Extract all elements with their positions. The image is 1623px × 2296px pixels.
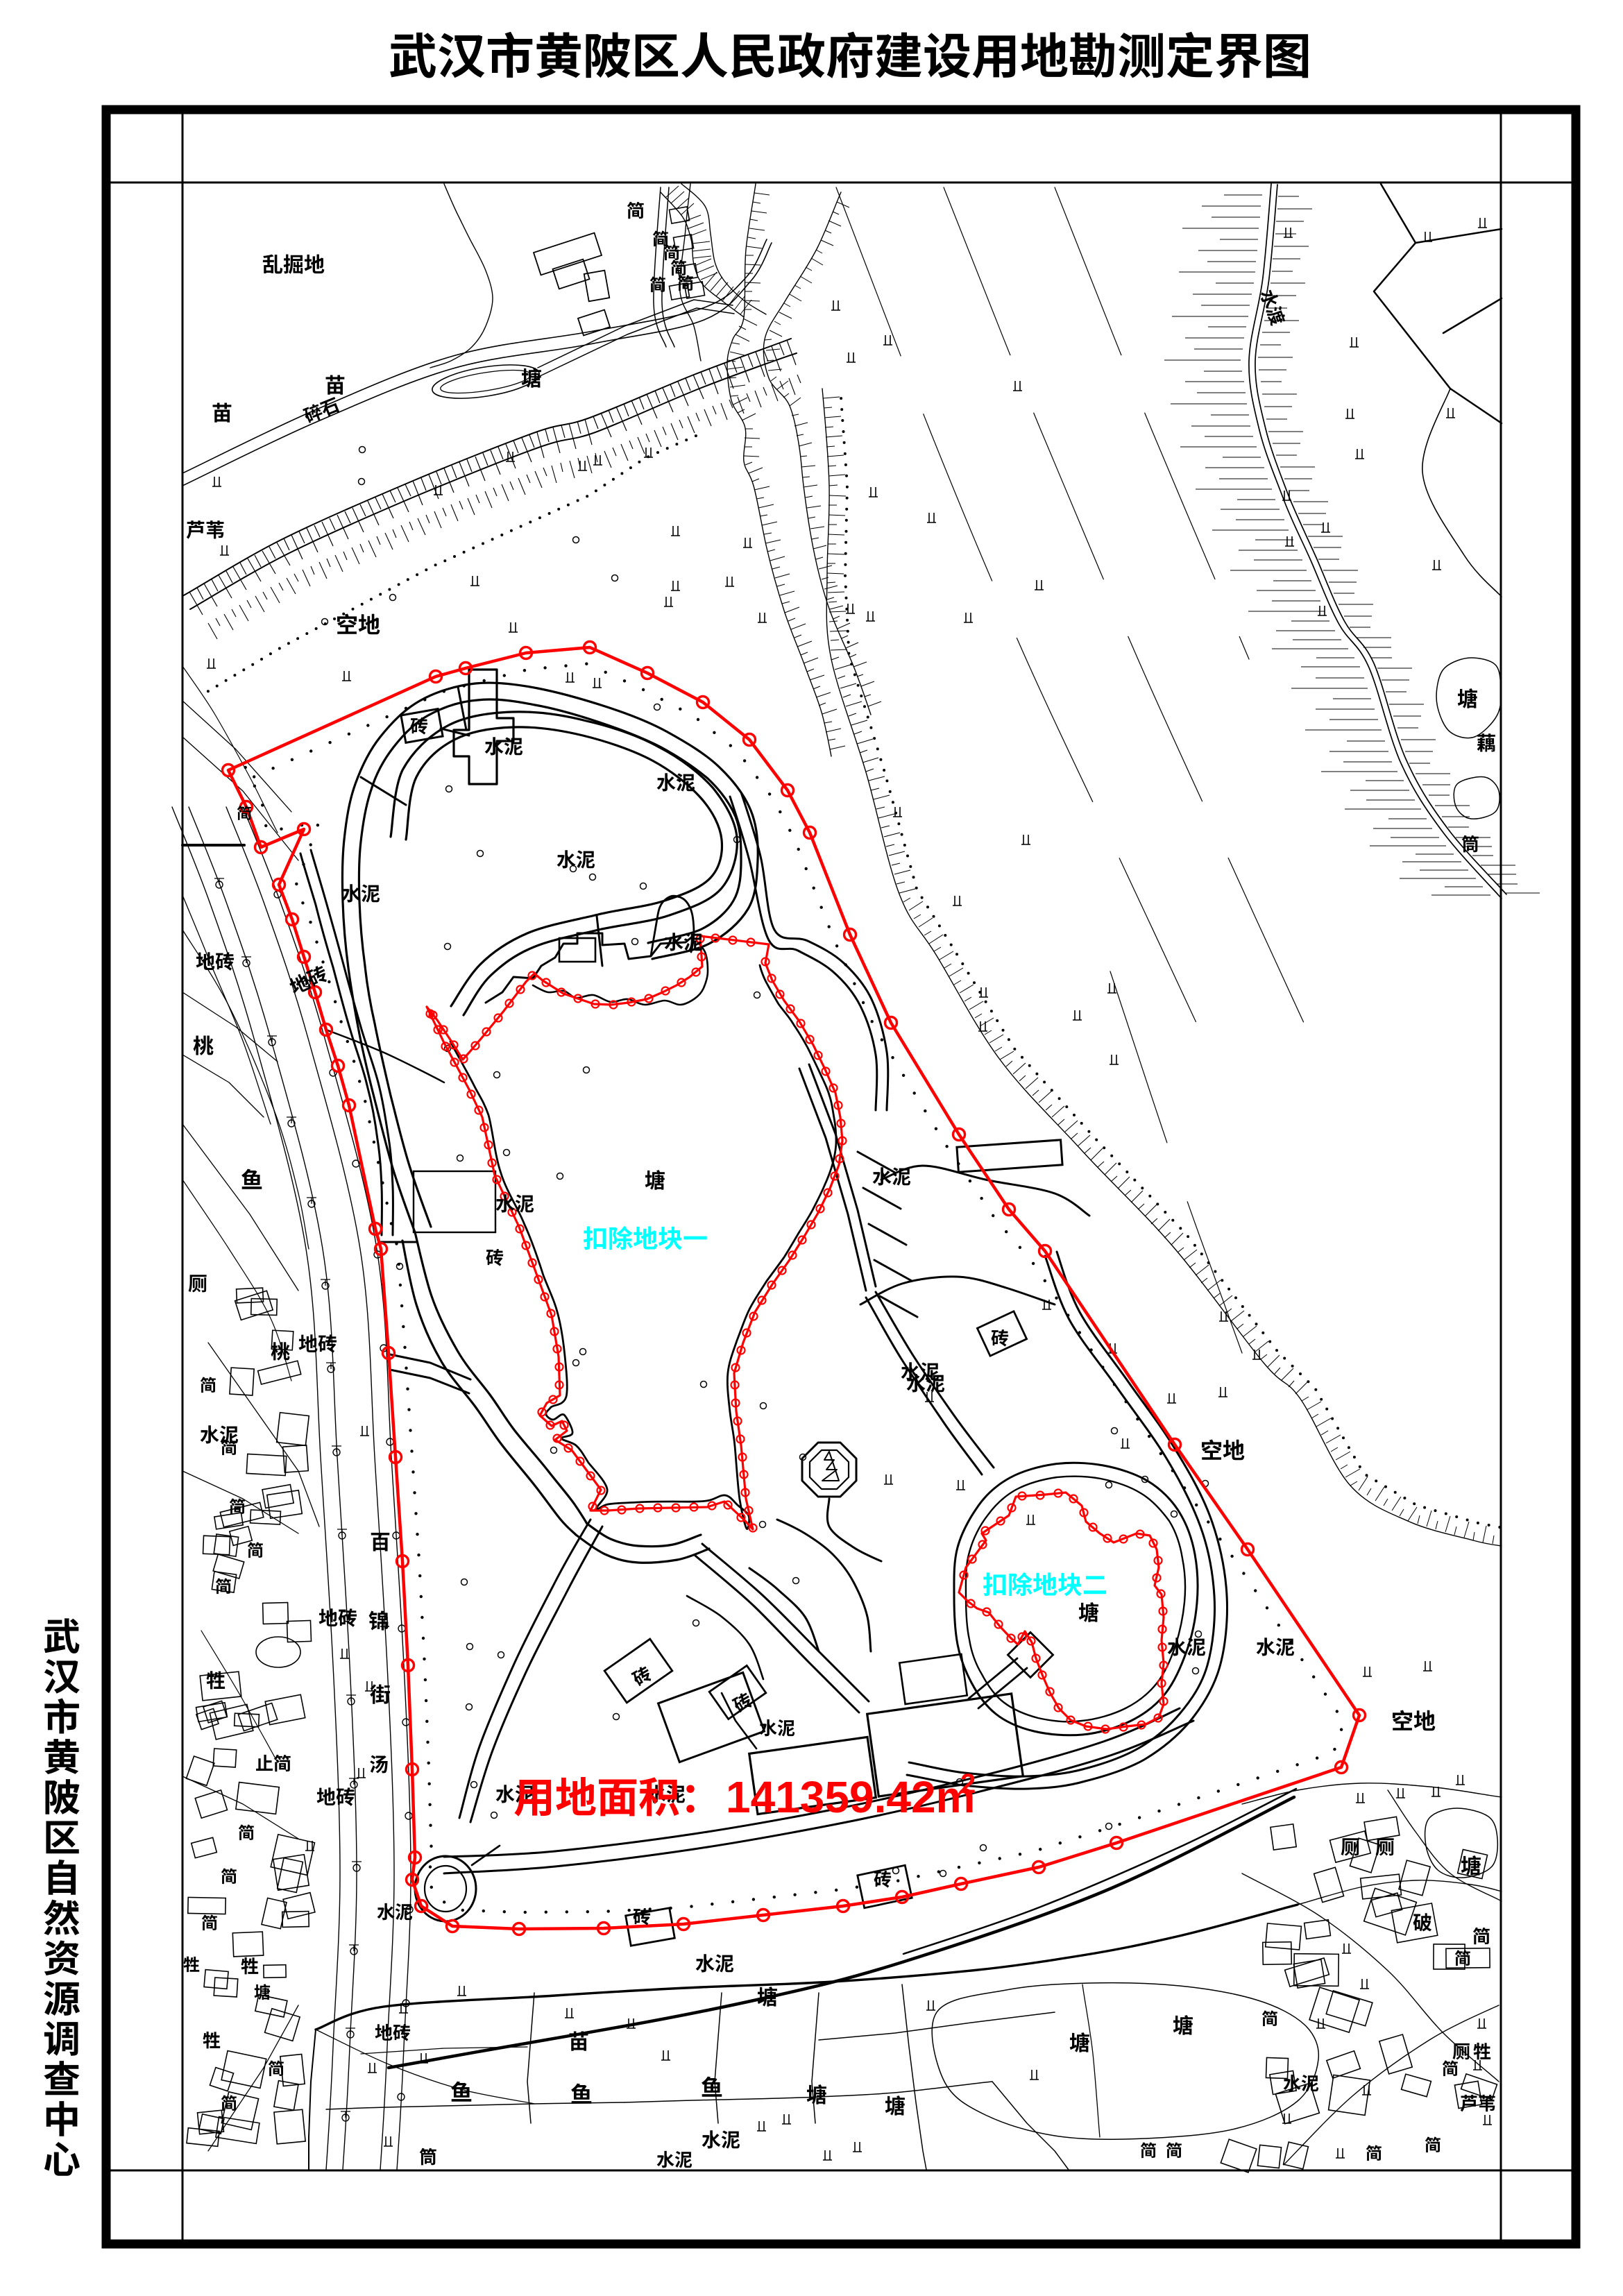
svg-text:141359.42m: 141359.42m: [726, 1772, 975, 1822]
svg-text:2: 2: [960, 1769, 976, 1799]
